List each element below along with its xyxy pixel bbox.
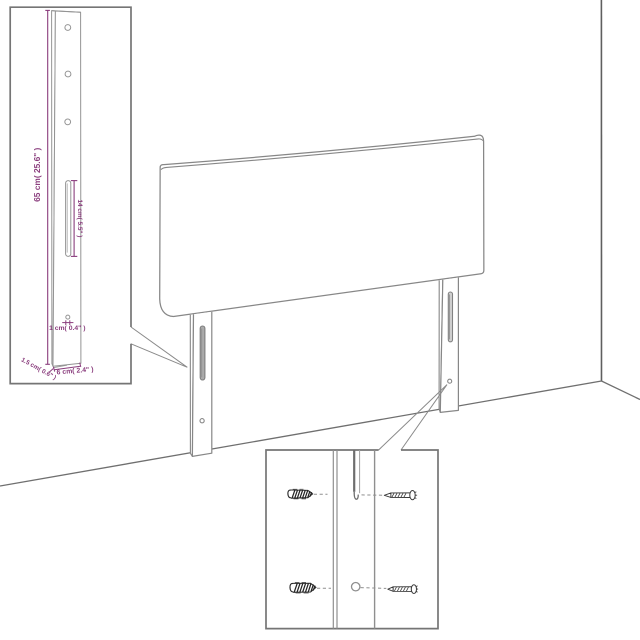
svg-text:6 cm( 2.4" ): 6 cm( 2.4" )	[56, 366, 93, 376]
svg-text:1 cm( 0.4" ): 1 cm( 0.4" )	[49, 325, 85, 332]
svg-text:14 cm( 5.5" ): 14 cm( 5.5" )	[76, 199, 83, 237]
svg-text:65 cm( 25.6" ): 65 cm( 25.6" )	[32, 147, 42, 201]
